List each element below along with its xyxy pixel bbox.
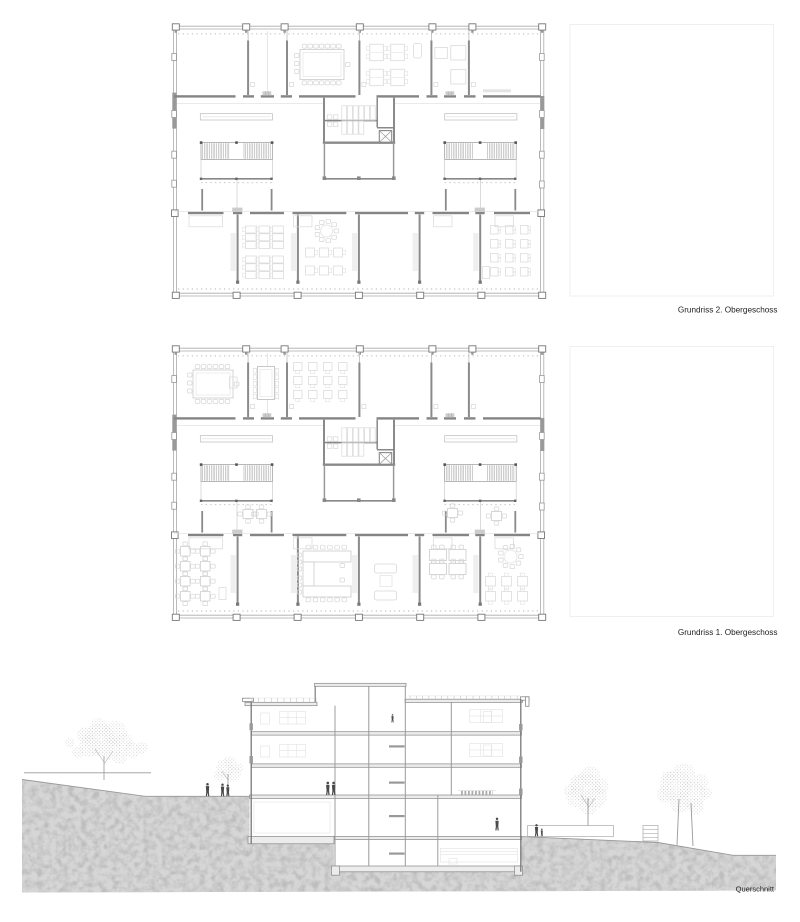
svg-text:Grundriss 2. Obergeschoss: Grundriss 2. Obergeschoss xyxy=(678,306,778,315)
svg-text:Grundriss 1. Obergeschoss: Grundriss 1. Obergeschoss xyxy=(678,628,778,637)
svg-text:Querschnitt: Querschnitt xyxy=(736,885,775,894)
